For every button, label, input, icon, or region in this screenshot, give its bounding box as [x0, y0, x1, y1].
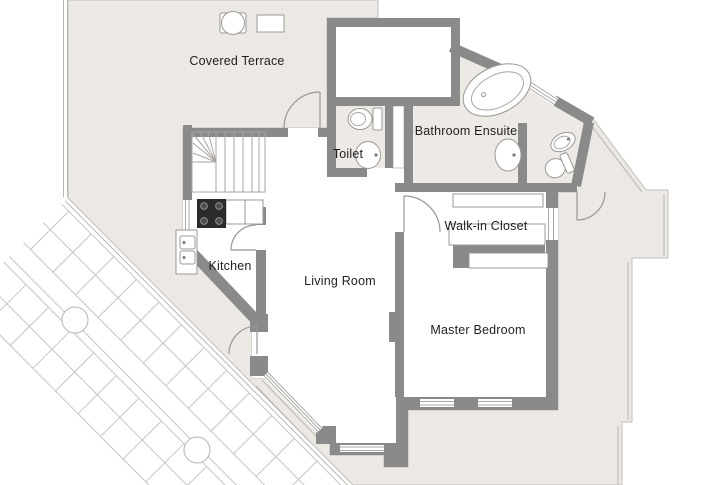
- room-label-covered-terrace: Covered Terrace: [189, 54, 284, 68]
- terrace-table: [257, 15, 284, 32]
- floor-plan-page: Covered Terrace Toilet Bathroom Ensuite …: [0, 0, 726, 485]
- window-bedroom-south-2: [478, 399, 512, 407]
- bedroom-wardrobe: [453, 253, 548, 268]
- floor-plan: Covered Terrace Toilet Bathroom Ensuite …: [0, 0, 726, 485]
- shaft: [393, 106, 404, 168]
- room-label-bathroom-ensuite: Bathroom Ensuite: [415, 124, 518, 138]
- stove: [197, 199, 226, 228]
- toilet-wc: [348, 108, 382, 130]
- room-label-kitchen: Kitchen: [208, 259, 251, 273]
- room-label-master-bedroom: Master Bedroom: [430, 323, 525, 337]
- window-kitchen: [183, 200, 192, 233]
- terrace-chair: [220, 12, 246, 35]
- deck-post: [62, 307, 88, 333]
- ensuite-sink: [495, 139, 521, 171]
- room-label-walk-in-closet: Walk-in Closet: [445, 219, 528, 233]
- window-closet: [546, 208, 558, 240]
- closet-shelf-top: [453, 194, 543, 207]
- window-living-south: [340, 445, 384, 452]
- window-bedroom-south-1: [420, 399, 454, 407]
- room-label-toilet: Toilet: [333, 147, 364, 161]
- room-label-living-room: Living Room: [304, 274, 376, 288]
- deck-post: [184, 437, 210, 463]
